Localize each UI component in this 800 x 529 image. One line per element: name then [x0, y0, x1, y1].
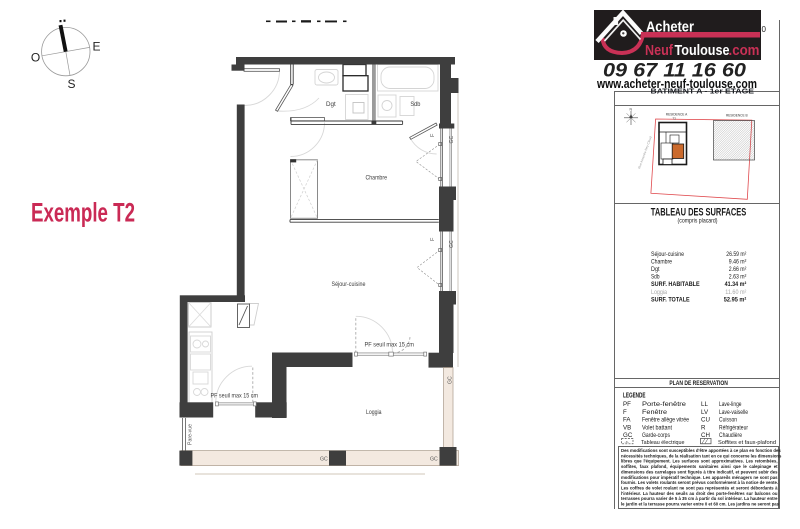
svg-text:S: S [67, 77, 75, 91]
svg-text:RESIDENCE A: RESIDENCE A [666, 113, 688, 117]
svg-text:-x-: -x- [625, 440, 630, 444]
svg-text:Chambre: Chambre [366, 175, 388, 182]
svg-text:N: N [630, 108, 633, 112]
svg-text:Réfrigérateur: Réfrigérateur [719, 424, 748, 431]
svg-text:Cuisson: Cuisson [719, 417, 737, 424]
svg-text:GC: GC [449, 135, 455, 143]
svg-text:Fenêtre allège vitrée: Fenêtre allège vitrée [642, 417, 689, 424]
svg-text:52.95 m²: 52.95 m² [724, 297, 747, 304]
svg-text:Neuf: Neuf [645, 42, 674, 59]
svg-text:BATIMENT A - 1er ETAGE: BATIMENT A - 1er ETAGE [651, 86, 755, 95]
svg-text:26.59 m²: 26.59 m² [726, 251, 746, 258]
svg-text:Garde-corps: Garde-corps [642, 432, 670, 439]
svg-text:CU: CU [701, 417, 710, 424]
svg-text:PF seuil max 15 cm: PF seuil max 15 cm [211, 394, 259, 400]
svg-text:(compris placard): (compris placard) [678, 218, 718, 225]
svg-text:Tableau électrique: Tableau électrique [641, 440, 685, 446]
svg-text:Exemple T2: Exemple T2 [31, 198, 135, 228]
svg-text:Loggia: Loggia [366, 409, 382, 416]
svg-text:Chambre: Chambre [651, 259, 672, 266]
svg-text:F: F [430, 237, 436, 241]
svg-text:Volet battant: Volet battant [642, 424, 672, 431]
svg-text:VB: VB [623, 424, 631, 431]
svg-text:2.63 m²: 2.63 m² [729, 274, 747, 281]
svg-text:R: R [701, 424, 706, 431]
svg-text:Sdb: Sdb [651, 274, 660, 281]
svg-text:GC: GC [430, 457, 438, 463]
svg-text:Lave-vaiselle: Lave-vaiselle [719, 409, 748, 416]
svg-text:2.66 m²: 2.66 m² [729, 266, 747, 273]
svg-text:GC: GC [449, 240, 455, 248]
svg-text:.com: .com [729, 42, 760, 59]
svg-text:9.46 m²: 9.46 m² [729, 259, 747, 266]
svg-text:Toulouse: Toulouse [675, 42, 730, 59]
svg-text:GC: GC [447, 376, 453, 384]
svg-text:Porte-fenêtre: Porte-fenêtre [642, 401, 687, 408]
svg-text:E: E [92, 40, 100, 54]
svg-text:FA: FA [623, 417, 631, 424]
svg-text:PF seuil max 15 cm: PF seuil max 15 cm [365, 343, 415, 349]
svg-text:GC: GC [320, 457, 328, 463]
svg-text:Dgt: Dgt [326, 101, 336, 108]
svg-text:Chaudière: Chaudière [719, 432, 742, 439]
svg-text:SURF. TOTALE: SURF. TOTALE [651, 297, 690, 304]
svg-text:GC: GC [623, 432, 633, 439]
svg-text:Pare-vue: Pare-vue [188, 424, 194, 445]
svg-text:RESIDENCE B: RESIDENCE B [726, 114, 748, 118]
svg-text:Dgt: Dgt [651, 266, 660, 273]
svg-text:LV: LV [701, 409, 709, 416]
svg-text:Sdb: Sdb [410, 101, 420, 108]
svg-text:Rue Amenée Ney Cloud: Rue Amenée Ney Cloud [637, 136, 653, 170]
svg-text:O: O [31, 51, 40, 65]
svg-text:PLAN DE RESERVATION: PLAN DE RESERVATION [669, 380, 728, 387]
svg-text:41.34 m²: 41.34 m² [725, 281, 747, 288]
svg-text:Acheter: Acheter [646, 19, 694, 36]
svg-text:0: 0 [762, 25, 767, 34]
svg-text:Fenêtre: Fenêtre [642, 409, 668, 416]
svg-text:T2: T2 [673, 117, 677, 121]
svg-text:F: F [623, 409, 627, 416]
svg-text:Soffites et faux-plafond: Soffites et faux-plafond [718, 440, 776, 446]
svg-text:LEGENDE: LEGENDE [623, 392, 646, 399]
svg-text:Loggia: Loggia [651, 289, 667, 296]
svg-text:Séjour-cuisine: Séjour-cuisine [332, 281, 366, 288]
svg-text:PF: PF [623, 401, 631, 408]
svg-text:Séjour-cuisine: Séjour-cuisine [651, 251, 684, 258]
svg-text:LL: LL [701, 401, 708, 408]
svg-text:Lave-linge: Lave-linge [719, 401, 742, 408]
svg-text:SURF. HABITABLE: SURF. HABITABLE [651, 281, 700, 288]
svg-text:11.60 m²: 11.60 m² [725, 289, 746, 296]
svg-text:F: F [430, 133, 436, 137]
